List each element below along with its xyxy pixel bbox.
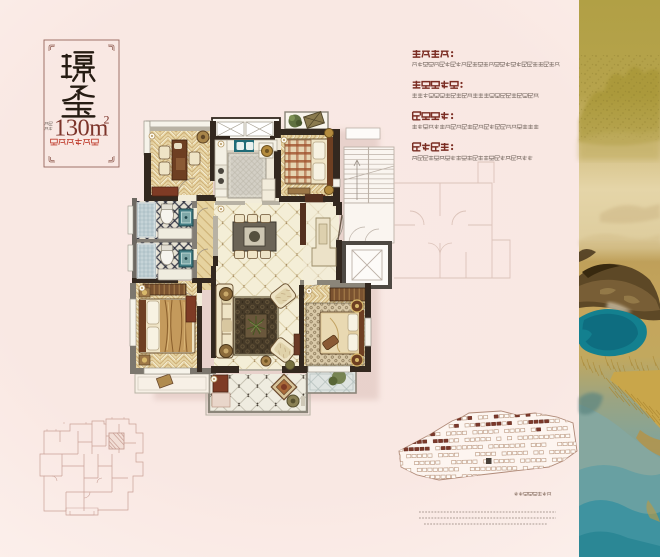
svg-text:130m: 130m: [54, 115, 108, 142]
svg-text:2: 2: [104, 113, 110, 127]
